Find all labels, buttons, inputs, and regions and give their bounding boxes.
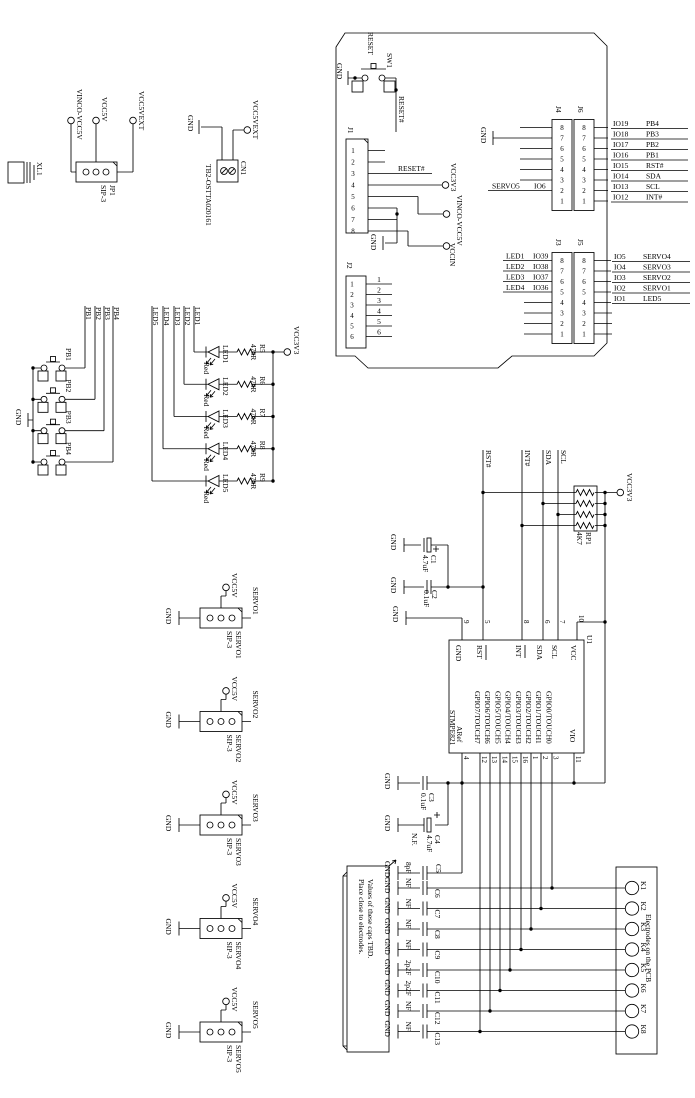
resistor-symbol bbox=[576, 512, 594, 518]
net-label: VCC5V bbox=[230, 780, 239, 805]
j3-net-row: LED1 IO39 bbox=[503, 252, 552, 261]
j5-net-row: IO5 SERVO4 bbox=[594, 252, 690, 262]
ref-label: J5 bbox=[576, 239, 585, 246]
pin-number: 8 bbox=[560, 257, 564, 265]
pad-label: K2 bbox=[639, 902, 648, 911]
j5-net-row: IO4 SERVO3 bbox=[594, 263, 690, 273]
pin-name: GPIO4/TOUCH4 bbox=[504, 691, 513, 744]
pin-number: 9 bbox=[462, 620, 470, 624]
j3-net-row: LED3 IO37 bbox=[503, 273, 552, 282]
res-ref-label: R6 bbox=[258, 376, 267, 385]
ref-label: C10 bbox=[433, 971, 442, 984]
gnd-label: GND bbox=[383, 959, 392, 976]
wires bbox=[483, 493, 605, 526]
color-label: Red bbox=[202, 394, 211, 406]
ref-label: C11 bbox=[433, 992, 442, 1004]
j6-net-row: IO12 INT# bbox=[594, 193, 688, 203]
port-vcc5v bbox=[223, 895, 230, 902]
value-label: NF bbox=[404, 878, 413, 888]
terminal-block-cn1: GND VCC5VEXT CN1 TB2-OSTTA020161 bbox=[186, 100, 260, 226]
pin-number: 2 bbox=[582, 187, 586, 195]
net-label: RESET# bbox=[398, 164, 425, 173]
gnd-label: GND bbox=[479, 127, 488, 144]
electrode-cap-row: GND 2p2F C10 bbox=[383, 959, 625, 984]
res-value-label: 470R bbox=[249, 441, 258, 457]
pin-number: 8 bbox=[351, 228, 355, 236]
net-label: SERVO3 bbox=[643, 263, 671, 272]
pin-number: 5 bbox=[560, 156, 564, 164]
net-label: VCC5V bbox=[230, 677, 239, 702]
ref-label: CN1 bbox=[239, 161, 248, 175]
led-symbol bbox=[206, 411, 219, 422]
electrode-cap-row: GND NF C7 bbox=[383, 898, 625, 919]
part-label: SIP-3 bbox=[99, 185, 108, 202]
pin-number: 12 bbox=[480, 756, 488, 764]
pin-number: 6 bbox=[351, 205, 355, 213]
servo-connector: GND VCC5V SERVO5 SERVO5 SIP-3 bbox=[164, 987, 260, 1073]
pin-name: INT bbox=[514, 645, 523, 658]
pin-number: 3 bbox=[582, 177, 586, 185]
io-label: IO3 bbox=[614, 273, 626, 282]
port-vcc3v3 bbox=[284, 349, 291, 356]
ref-label: JP1 bbox=[108, 185, 117, 196]
io-label: IO36 bbox=[533, 283, 549, 292]
res-ref-label: R9 bbox=[258, 473, 267, 482]
gnd-label: GND bbox=[383, 1000, 392, 1017]
gnd-label: GND bbox=[383, 898, 392, 915]
res-ref-label: R8 bbox=[258, 441, 267, 450]
electrode-cap-row: GND NF C13 bbox=[383, 1021, 625, 1046]
net-label: SERVO5 bbox=[251, 1001, 260, 1029]
j6-net-row: IO15 RST# bbox=[594, 161, 688, 171]
pin-number: 6 bbox=[582, 145, 586, 153]
io-label: IO19 bbox=[613, 119, 629, 128]
port-vcc5v bbox=[93, 117, 100, 124]
pin-name: SCL bbox=[550, 645, 559, 659]
ref-label: PB4 bbox=[64, 442, 73, 455]
ref-label: PB2 bbox=[64, 379, 73, 392]
wires bbox=[348, 78, 396, 132]
gnd-label: GND bbox=[383, 877, 392, 894]
net-label: PB1 bbox=[646, 151, 659, 160]
ref-label: J3 bbox=[554, 239, 563, 246]
cap-symbol bbox=[423, 1025, 427, 1039]
j2-net-row: 1 bbox=[366, 275, 392, 284]
pin-number: 7 bbox=[560, 135, 564, 143]
port-vcc5vext bbox=[244, 127, 251, 134]
pin-number: 7 bbox=[560, 268, 564, 276]
io-label: IO17 bbox=[613, 140, 629, 149]
net-label: SERVO5 bbox=[492, 182, 520, 191]
electrode-pad: K7 bbox=[625, 1004, 648, 1018]
gnd-label: GND bbox=[164, 919, 173, 936]
net-label: LED3 bbox=[173, 307, 182, 326]
pin-number: 5 bbox=[483, 620, 491, 624]
net-label: VINCO-VCC5V bbox=[75, 89, 84, 140]
net-label: 2 bbox=[377, 286, 381, 295]
ref-label: PB1 bbox=[64, 348, 73, 361]
ref-label: LED3 bbox=[221, 410, 230, 429]
header-j4-j6: J4 J6 87654321 87654321 GND SERVO5 IO6 I… bbox=[479, 106, 688, 211]
net-label: VCC5VEXT bbox=[251, 100, 260, 140]
ref-label: C7 bbox=[433, 910, 442, 919]
ref-label: RP1 bbox=[584, 532, 593, 545]
pin-number: 7 bbox=[582, 135, 586, 143]
io-label: IO2 bbox=[614, 284, 626, 293]
net-label: SERVO3 bbox=[251, 794, 260, 822]
ref-label: C5 bbox=[434, 864, 443, 873]
pin-number: 3 bbox=[351, 170, 355, 178]
j6-net-row: IO14 SDA bbox=[594, 172, 688, 182]
servo-connectors: GND VCC5V SERVO1 SERVO1 SIP-3 GND VCC5V … bbox=[164, 573, 260, 1073]
pin-number: 3 bbox=[560, 177, 564, 185]
pin-number: 6 bbox=[582, 278, 586, 286]
color-label: Red bbox=[202, 459, 211, 471]
io-label: IO12 bbox=[613, 193, 629, 202]
io-label: IO38 bbox=[533, 262, 549, 271]
electrode-pad: K1 bbox=[625, 881, 648, 895]
pin-name: GPIO3/TOUCH3 bbox=[514, 691, 523, 744]
scroll-edge bbox=[343, 872, 347, 1050]
ref-label: SERVO5 bbox=[234, 1045, 243, 1073]
net-label: SERVO2 bbox=[251, 691, 260, 719]
led-cell: LED1 Red R5 470R bbox=[202, 344, 275, 374]
pin-number: 15 bbox=[511, 756, 519, 764]
res-ref-label: R7 bbox=[258, 409, 267, 418]
net-label: VCC3V3 bbox=[625, 473, 634, 502]
pin-name: GPIO7/TOUCH7 bbox=[473, 691, 482, 744]
pin-number: 1 bbox=[582, 331, 586, 339]
j2-net-row: 2 bbox=[366, 286, 392, 295]
led-cell: LED3 Red R7 470R bbox=[202, 409, 275, 439]
pin-number: 4 bbox=[462, 756, 470, 760]
resistor-symbol bbox=[576, 523, 594, 529]
j5-net-row: IO2 SERVO1 bbox=[594, 284, 690, 294]
part-label: SIP-3 bbox=[225, 631, 234, 648]
net-label: LED1 bbox=[506, 252, 525, 261]
ref-label: LED5 bbox=[221, 474, 230, 493]
net-label: VCC5V bbox=[100, 97, 109, 122]
pin-number: 13 bbox=[490, 756, 498, 764]
res-value-label: 470R bbox=[249, 473, 258, 489]
servo-connector: GND VCC5V SERVO1 SERVO1 SIP-3 bbox=[164, 573, 260, 659]
port-vcc5v bbox=[223, 688, 230, 695]
pin-number: 14 bbox=[500, 756, 508, 764]
pin-number: 6 bbox=[350, 333, 354, 341]
electrode-cap-row: GND NF C12 bbox=[383, 1000, 625, 1025]
pin-name: RST bbox=[475, 645, 484, 659]
gnd-label: GND bbox=[383, 939, 392, 956]
part-label: TB2-OSTTA020161 bbox=[204, 164, 213, 226]
net-label: VCC5VEXT bbox=[137, 91, 146, 131]
ref-label: J4 bbox=[554, 106, 563, 113]
io-label: IO13 bbox=[613, 182, 629, 191]
cap-symbol bbox=[423, 902, 427, 916]
value-label: NF bbox=[404, 1022, 413, 1032]
part-label: SIP-3 bbox=[225, 1045, 234, 1062]
j2-net-row: 4 bbox=[366, 307, 392, 316]
net-label: 1 bbox=[377, 275, 381, 284]
value-label: NF bbox=[404, 899, 413, 909]
pin-number: 4 bbox=[582, 166, 586, 174]
io-label: IO18 bbox=[613, 130, 629, 139]
net-label: SERVO1 bbox=[251, 587, 260, 615]
port-vinco-vcc5v bbox=[68, 117, 75, 124]
value-label: 4.7uF bbox=[421, 555, 430, 572]
res-value-label: 470R bbox=[249, 344, 258, 360]
wires bbox=[201, 127, 244, 160]
gnd-label: GND bbox=[383, 980, 392, 997]
ref-label: J6 bbox=[576, 106, 585, 113]
led-cell: LED2 Red R6 470R bbox=[202, 376, 275, 406]
pin-number: 3 bbox=[350, 302, 354, 310]
part-label: SIP-3 bbox=[225, 942, 234, 959]
resistor-symbol bbox=[576, 490, 594, 496]
pin-number: 2 bbox=[560, 320, 564, 328]
net-label: VCC5V bbox=[230, 884, 239, 909]
j5-net-row: IO1 LED5 bbox=[594, 294, 690, 304]
pin-number: 7 bbox=[558, 620, 566, 624]
led-cell: LED5 Red R9 470R bbox=[202, 473, 275, 503]
pin-number: 1 bbox=[560, 198, 564, 206]
cap-symbol bbox=[423, 776, 427, 790]
ref-label: SERVO4 bbox=[234, 942, 243, 970]
pin-number: 2 bbox=[541, 756, 549, 760]
connector-j1: 12345678 J1 RESET# VCC3V3 VINCO-VCC5V VC… bbox=[346, 127, 464, 267]
electrode-cap-row: GND NF C6 bbox=[383, 877, 625, 898]
net-label: SERVO4 bbox=[251, 898, 260, 926]
value-label: 4.7uF bbox=[425, 835, 434, 852]
net-label: PB1 bbox=[84, 307, 93, 320]
led-symbol bbox=[206, 476, 219, 487]
net-label: INT# bbox=[646, 193, 662, 202]
net-label: SERVO1 bbox=[643, 284, 671, 293]
j6-net-row: IO19 PB4 bbox=[594, 119, 688, 129]
cap-symbol bbox=[423, 922, 427, 936]
net-label: LED4 bbox=[506, 283, 525, 292]
ref-label: C13 bbox=[433, 1033, 442, 1046]
io-label: IO16 bbox=[613, 151, 629, 160]
j2-net-row: 6 bbox=[366, 328, 392, 337]
note-line: Place close to electrodes. bbox=[357, 879, 366, 955]
io-label: IO15 bbox=[613, 161, 629, 170]
net-label: VCC5V bbox=[230, 573, 239, 598]
pin-number: 8 bbox=[582, 257, 586, 265]
gnd-label: GND bbox=[383, 861, 392, 878]
header-j3-j5: J3 J5 87654321 87654321 LED1 IO39 LED2 I… bbox=[503, 239, 690, 344]
color-label: Red bbox=[202, 491, 211, 503]
pin-number: 1 bbox=[560, 331, 564, 339]
schematic-page: XL1 VINCO-VCC5V VCC5V VCC5VEXT JP1 SIP-3… bbox=[0, 0, 695, 1098]
pin-number: 7 bbox=[351, 216, 355, 224]
gnd-label: GND bbox=[389, 534, 398, 551]
electrode-pad: K6 bbox=[625, 984, 648, 998]
net-label: RESET# bbox=[397, 96, 406, 123]
pushbutton-array: GND PB1 PB2 PB3 bbox=[14, 306, 121, 475]
touch-controller-u1: GND U1 STMPE821 GND RST INT SDA SCL VCC … bbox=[383, 450, 634, 880]
io-label: IO4 bbox=[614, 263, 626, 272]
io-label: IO5 bbox=[614, 252, 626, 261]
net-label: SERVO2 bbox=[643, 273, 671, 282]
value-label: NF bbox=[404, 1001, 413, 1011]
ref-label: PB3 bbox=[64, 411, 73, 424]
pad-label: K7 bbox=[639, 1004, 648, 1013]
net-label: RST# bbox=[484, 450, 493, 468]
pin-number: 6 bbox=[560, 278, 564, 286]
electrode-cap-row: GND NF C8 bbox=[383, 918, 625, 939]
pin-number: 1 bbox=[350, 281, 354, 289]
power-jumper-jp1: VINCO-VCC5V VCC5V VCC5VEXT JP1 SIP-3 bbox=[68, 89, 146, 202]
gnd-label: GND bbox=[164, 712, 173, 729]
pin-number: 3 bbox=[582, 310, 586, 318]
part-label: SIP-3 bbox=[225, 838, 234, 855]
ref-label: SERVO3 bbox=[234, 838, 243, 866]
pin-number: 8 bbox=[522, 620, 530, 624]
gnd-label: GND bbox=[383, 773, 392, 790]
pin-name: VCC bbox=[569, 645, 578, 660]
schematic-canvas: XL1 VINCO-VCC5V VCC5V VCC5VEXT JP1 SIP-3… bbox=[0, 0, 695, 1098]
pin-number: 4 bbox=[560, 299, 564, 307]
pin-number: 6 bbox=[560, 145, 564, 153]
net-label: VCC5V bbox=[230, 987, 239, 1012]
pin-name: GPIO5/TOUCH5 bbox=[493, 691, 502, 744]
pin-number: 2 bbox=[350, 291, 354, 299]
value-label: 2p2F bbox=[404, 981, 413, 996]
value-label: 2p2F bbox=[404, 960, 413, 975]
ref-label: C9 bbox=[433, 951, 442, 960]
value-label: 8pF bbox=[404, 862, 413, 874]
led-array: LED5 LED4 LED3 LED2 LED1 LED1 Red R5 470… bbox=[151, 306, 301, 503]
gnd-label: GND bbox=[14, 409, 23, 426]
ref-label: XL1 bbox=[35, 162, 44, 176]
net-label: VCC3V3 bbox=[292, 326, 301, 355]
pushbutton: PB4 bbox=[31, 442, 73, 475]
pin-number: 2 bbox=[351, 159, 355, 167]
ref-label: C12 bbox=[433, 1012, 442, 1025]
pin-number: 4 bbox=[582, 299, 586, 307]
pin-name: GPIO1/TOUCH1 bbox=[534, 691, 543, 744]
led-symbol bbox=[206, 443, 219, 454]
value-label: NF bbox=[404, 940, 413, 950]
port-vcc5v bbox=[223, 998, 230, 1005]
net-label: LED2 bbox=[506, 262, 525, 271]
pin-number: 5 bbox=[582, 289, 586, 297]
pullup-rp1: RP1 4K7 VCC3V3 bbox=[483, 473, 634, 545]
pin-name: GPIO0/TOUCH0 bbox=[544, 691, 553, 744]
value-label: 4K7 bbox=[575, 532, 584, 545]
pin-name: VIO bbox=[568, 729, 577, 743]
ref-label: J1 bbox=[346, 127, 355, 134]
net-label: SDA bbox=[544, 450, 553, 466]
servo-connector: GND VCC5V SERVO2 SERVO2 SIP-3 bbox=[164, 677, 260, 763]
pin-number: 5 bbox=[351, 193, 355, 201]
io-label: IO1 bbox=[614, 294, 626, 303]
wires bbox=[152, 306, 284, 481]
servo-connector: GND VCC5V SERVO3 SERVO3 SIP-3 bbox=[164, 780, 260, 866]
pin-number: 2 bbox=[560, 187, 564, 195]
j3-net-row: LED2 IO38 bbox=[503, 262, 552, 271]
pin-name: SDA bbox=[535, 645, 544, 661]
reset-switch-sw1: GND RESET SW1 RESET# bbox=[335, 32, 406, 132]
port-vcc3v3 bbox=[617, 489, 624, 496]
board-module: GND RESET SW1 RESET# 12345678 J1 RESET# … bbox=[335, 32, 690, 368]
electrode-pads: K1 K2 K3 K4 K5 K6 K7 K8 Electrodes on th… bbox=[616, 867, 657, 1054]
net-label: LED4 bbox=[162, 307, 171, 326]
pin-number: 8 bbox=[560, 124, 564, 132]
cap-symbol bbox=[423, 984, 427, 998]
ref-label: LED1 bbox=[221, 345, 230, 364]
ref-label: LED2 bbox=[221, 377, 230, 396]
ref-label: U1 bbox=[585, 635, 594, 644]
j6-net-row: IO13 SCL bbox=[594, 182, 688, 192]
net-label: LED5 bbox=[151, 307, 160, 326]
ref-label: C6 bbox=[433, 889, 442, 898]
port-vcc5v bbox=[223, 791, 230, 798]
pin-number: 5 bbox=[350, 323, 354, 331]
note-line: Values of these caps TBD. bbox=[366, 879, 375, 958]
pin-number: 4 bbox=[350, 312, 354, 320]
net-label: VINCO-VCC5V bbox=[455, 195, 464, 246]
part-label: SIP-3 bbox=[225, 735, 234, 752]
cap-symbol bbox=[423, 1004, 427, 1018]
nf-label: N.F. bbox=[410, 833, 419, 846]
value-label: 0.1uF bbox=[422, 590, 431, 607]
pushbutton: PB3 bbox=[31, 411, 73, 444]
pin-number: 3 bbox=[560, 310, 564, 318]
gnd-label: GND bbox=[186, 115, 195, 132]
cap-symbol bbox=[423, 943, 427, 957]
net-label: 4 bbox=[377, 307, 381, 316]
pin-number: 2 bbox=[582, 320, 586, 328]
net-label: PB3 bbox=[646, 130, 659, 139]
value-label: 0.1uF bbox=[419, 793, 428, 810]
j3-net-row: LED4 IO36 bbox=[503, 283, 552, 292]
led-symbol bbox=[206, 347, 219, 358]
gnd-label: GND bbox=[164, 1022, 173, 1039]
net-label: VCC3V3 bbox=[449, 163, 458, 192]
ref-label: SERVO1 bbox=[234, 631, 243, 659]
port-vcc5v bbox=[223, 584, 230, 591]
net-label: LED1 bbox=[193, 307, 202, 326]
res-value-label: 470R bbox=[249, 376, 258, 392]
gnd-label: GND bbox=[369, 234, 378, 251]
pin-number: 4 bbox=[351, 182, 355, 190]
pin-name: GPIO6/TOUCH6 bbox=[483, 691, 492, 744]
cap-symbol bbox=[423, 881, 427, 895]
pin-number: 7 bbox=[582, 268, 586, 276]
connector-j2: J2 123456 1 2 3 4 5 6 bbox=[345, 262, 392, 348]
pin-number: 5 bbox=[560, 289, 564, 297]
servo-connector: GND VCC5V SERVO4 SERVO4 SIP-3 bbox=[164, 884, 260, 970]
net-label: IO6 bbox=[534, 182, 546, 191]
pin-number: 6 bbox=[543, 620, 551, 624]
net-label: SDA bbox=[646, 172, 662, 181]
net-label: RST# bbox=[646, 161, 664, 170]
pin-number: 8 bbox=[582, 124, 586, 132]
pad-label: K6 bbox=[639, 984, 648, 993]
gnd-label: GND bbox=[391, 606, 400, 623]
pin-name: ARef bbox=[455, 726, 464, 743]
pin-number: 10 bbox=[577, 615, 585, 623]
gnd-label: GND bbox=[383, 815, 392, 832]
ref-label: C8 bbox=[433, 930, 442, 939]
net-label: PB2 bbox=[94, 307, 103, 320]
j5-net-row: IO3 SERVO2 bbox=[594, 273, 690, 283]
net-label: 3 bbox=[377, 296, 381, 305]
crystal-xl1: XL1 bbox=[8, 162, 44, 183]
gnd-label: GND bbox=[389, 577, 398, 594]
net-label: 6 bbox=[377, 328, 381, 337]
